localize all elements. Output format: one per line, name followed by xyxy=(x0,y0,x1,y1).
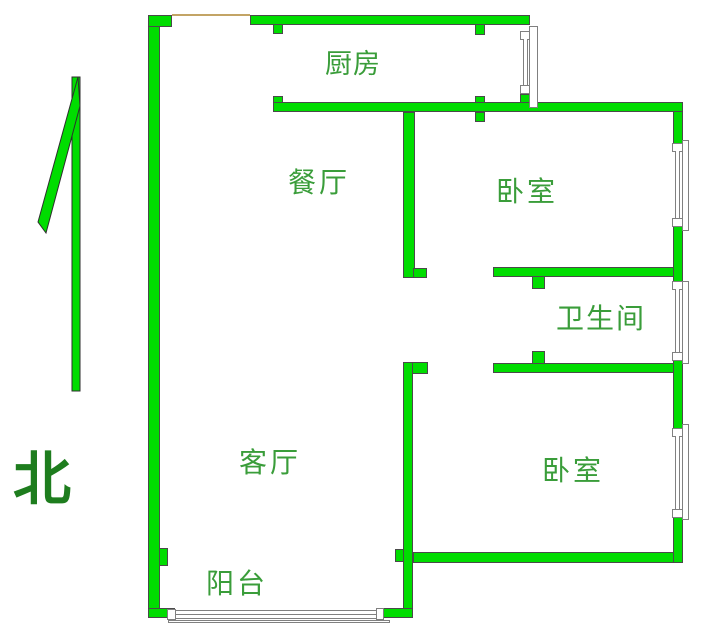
balcony-window-glass xyxy=(176,610,376,619)
balcony-window-sill xyxy=(168,620,390,623)
door-stub-bedroom-top xyxy=(475,112,485,122)
wall-right-segment-2 xyxy=(673,226,683,282)
wall-bathroom-top xyxy=(493,267,683,277)
wall-bedroom-bottom xyxy=(413,552,683,563)
room-label-living: 客厅 xyxy=(239,448,301,478)
door-stub-bathroom-bottom xyxy=(532,351,545,364)
door-stub-top-wall-b xyxy=(475,24,485,35)
wall-kitchen-bottom xyxy=(273,102,683,112)
floor-plan: 厨房 餐厅 卧室 卫生间 客厅 卧室 阳台 北 xyxy=(0,0,725,638)
wall-balcony-bottom-right xyxy=(383,608,413,618)
north-arrow-icon xyxy=(30,70,90,400)
bedroom-top-window-outer xyxy=(682,140,689,231)
door-stub-kitchen-right xyxy=(475,96,485,103)
wall-bathroom-bottom xyxy=(493,363,683,373)
entry-door-opening xyxy=(172,14,250,16)
wall-top-left-segment xyxy=(148,15,172,27)
room-label-bathroom: 卫生间 xyxy=(556,304,646,334)
balcony-window-glass-midline xyxy=(176,614,376,615)
balcony-window-cap-left xyxy=(167,609,176,620)
room-label-balcony: 阳台 xyxy=(206,569,268,599)
bedroom-bottom-window-cap-bottom xyxy=(672,509,683,518)
door-stub-kitchen-left xyxy=(273,96,283,103)
wall-dining-divider xyxy=(403,112,415,278)
door-stub-top-wall-a xyxy=(273,24,283,34)
bedroom-top-window-glass xyxy=(675,151,680,219)
balcony-window-cap-right xyxy=(376,608,384,620)
north-label: 北 xyxy=(13,449,71,509)
kitchen-window-outer xyxy=(529,26,538,108)
wall-top-right-segment xyxy=(250,15,530,25)
wall-right-segment-3 xyxy=(673,359,683,429)
bathroom-window-outer xyxy=(682,281,689,364)
bathroom-window-glass xyxy=(675,289,680,353)
bedroom-top-window-cap-bottom xyxy=(672,218,683,227)
kitchen-window-glass xyxy=(523,39,528,86)
balcony-opening-nub-right xyxy=(395,549,404,562)
wall-dining-divider-foot xyxy=(413,268,427,278)
wall-living-divider xyxy=(403,362,413,616)
kitchen-window-cap-bottom xyxy=(520,85,530,94)
room-label-bedroom-top: 卧室 xyxy=(496,177,558,207)
wall-left-exterior xyxy=(148,15,160,618)
balcony-opening-nub-left xyxy=(159,548,168,566)
wall-right-segment-4 xyxy=(673,517,683,563)
bedroom-bottom-window-outer xyxy=(682,424,689,520)
room-label-kitchen: 厨房 xyxy=(325,50,381,80)
bedroom-bottom-window-glass xyxy=(675,436,680,510)
door-stub-bathroom-top xyxy=(532,276,545,289)
room-label-bedroom-bottom: 卧室 xyxy=(542,456,604,486)
room-label-dining: 餐厅 xyxy=(288,168,350,198)
bathroom-window-cap-bottom xyxy=(672,352,683,361)
